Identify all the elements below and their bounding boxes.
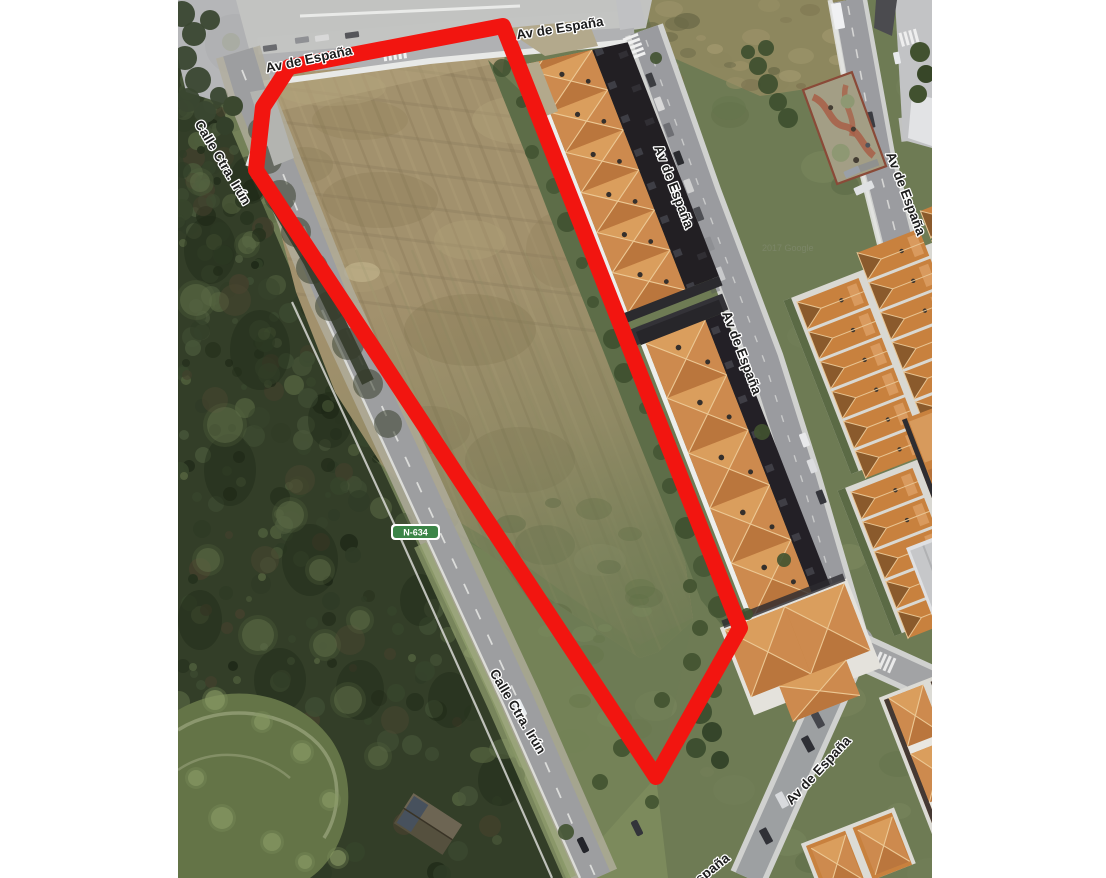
svg-text:N-634: N-634 <box>403 528 428 538</box>
svg-text:2017 Google: 2017 Google <box>762 243 814 253</box>
